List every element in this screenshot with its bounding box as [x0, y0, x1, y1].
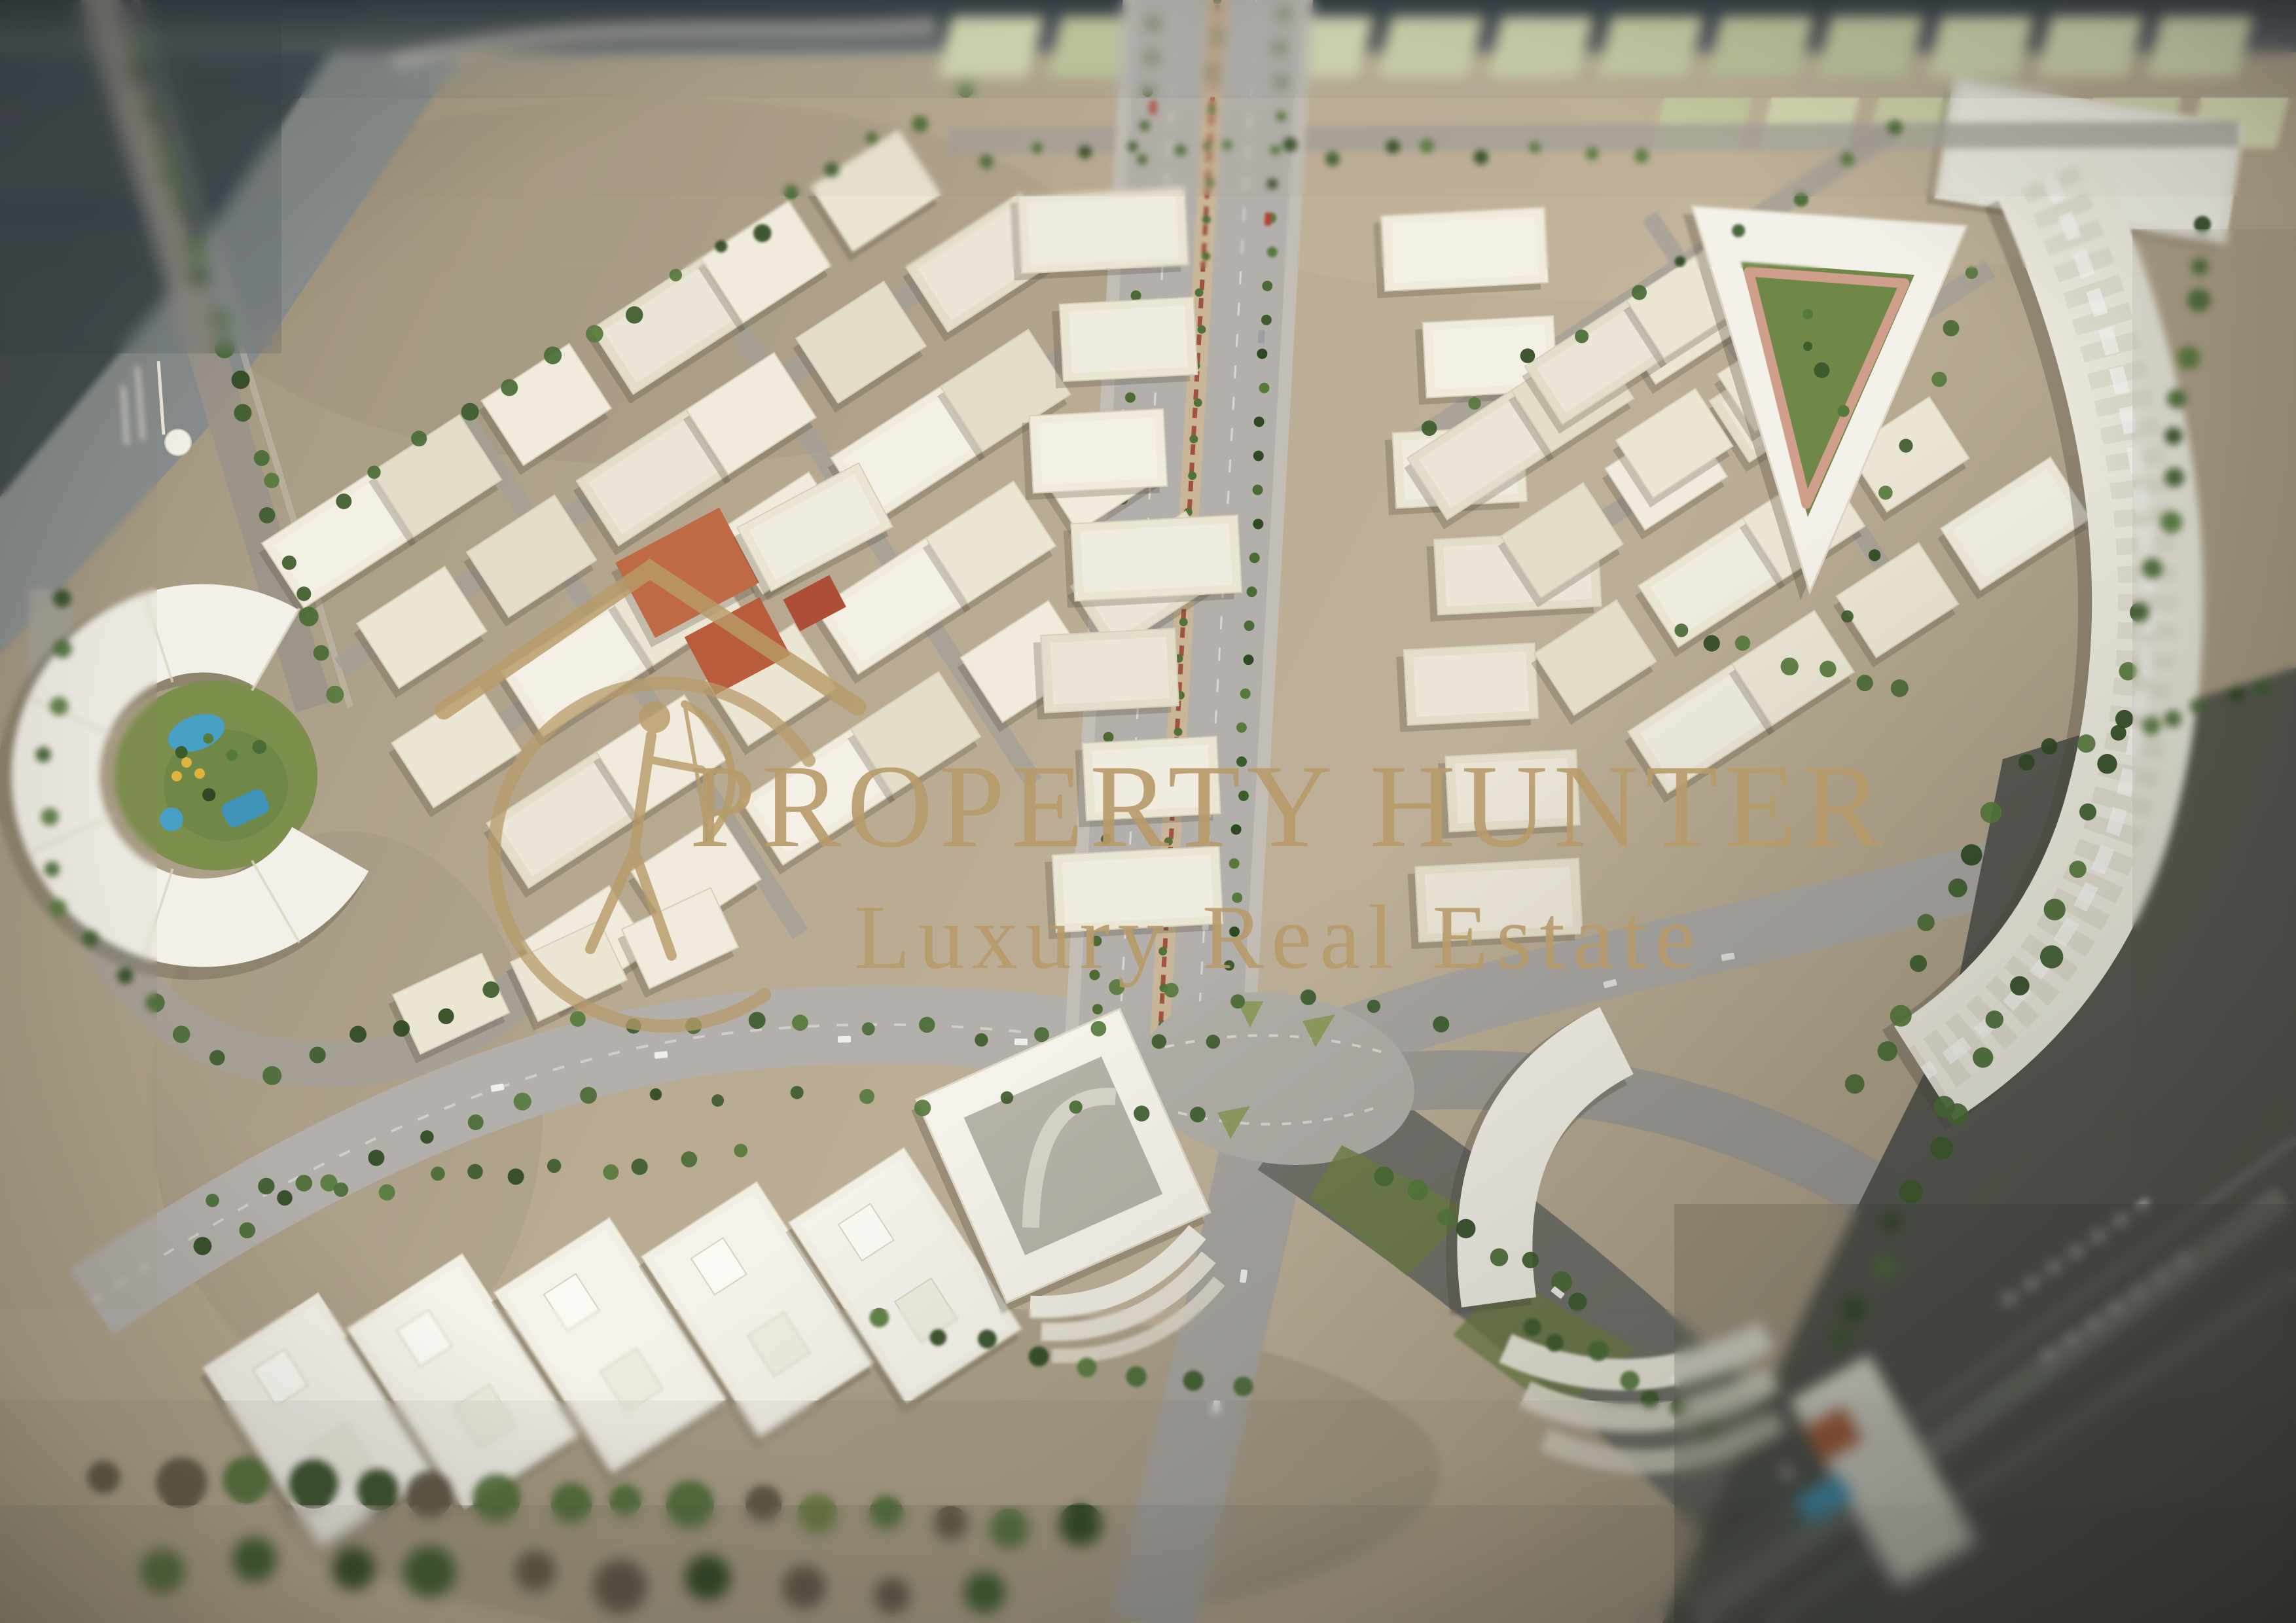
model-photo: PROPERTY HUNTER Luxury Real Estate [0, 0, 2296, 1623]
masterplan-scene [0, 0, 2296, 1623]
